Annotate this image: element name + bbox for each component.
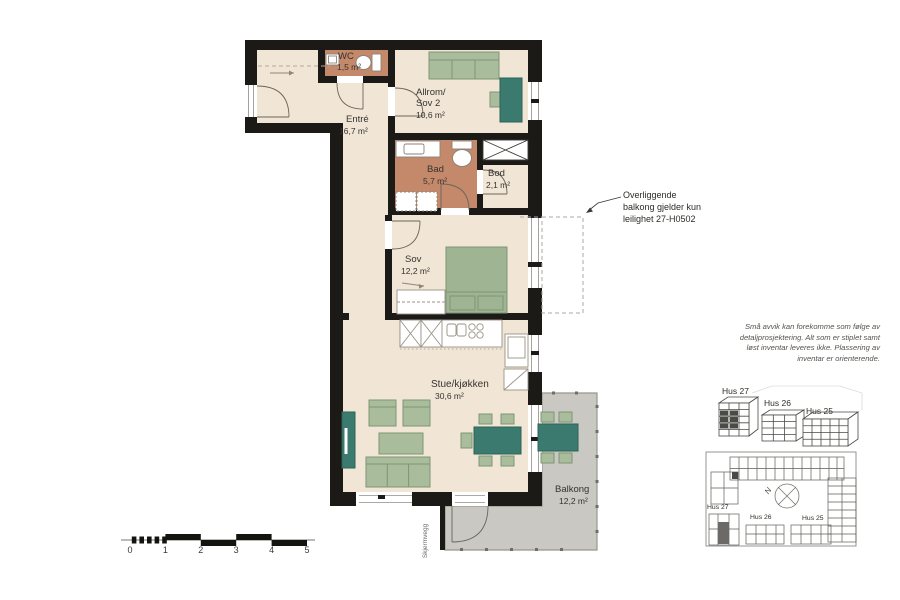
- dining-chair: [501, 414, 514, 424]
- washer-icon: [396, 192, 416, 211]
- sov-door-opening: [385, 221, 392, 249]
- site-plan: [706, 452, 856, 546]
- balcony-chair: [559, 453, 572, 463]
- room-label-entre: Entré: [346, 115, 369, 125]
- elevation-label-hus26: Hus 26: [764, 399, 791, 408]
- disclaimer-text: Små avvik kan forekomme som følge av det…: [660, 322, 880, 364]
- wc-sink-basin-icon: [329, 56, 337, 63]
- kitchen-sink-basin-1: [447, 324, 456, 336]
- room-area-allrom: 10,6 m²: [416, 111, 445, 120]
- wall-entre-allrom-1: [388, 50, 395, 87]
- elevation-label-hus27: Hus 27: [722, 387, 749, 396]
- wall-right-2: [528, 120, 542, 218]
- dining-chair: [479, 456, 492, 466]
- wall-sov-left-1: [385, 215, 392, 221]
- wall-right-5: [528, 472, 542, 506]
- elevation-label-hus25: Hus 25: [806, 407, 833, 416]
- dining-chair: [479, 414, 492, 424]
- room-label-sov: Sov: [405, 255, 421, 265]
- bad-toilet-tank-icon: [452, 141, 472, 149]
- balcony-chair: [559, 412, 572, 422]
- balcony-door-opening: [452, 492, 488, 506]
- balcony-chair: [541, 453, 554, 463]
- annotation-line-2: balkong gjelder kun: [623, 203, 701, 213]
- wall-right-4: [528, 372, 542, 405]
- annotation-line-1: Overliggende: [623, 191, 677, 201]
- floorplan-drawing: [0, 0, 900, 600]
- dryer-icon: [417, 192, 437, 211]
- desk-chair: [490, 92, 500, 107]
- wall-bad-bottom-2: [469, 208, 528, 215]
- coffee-table: [379, 433, 423, 454]
- wall-wc-bottom-1: [318, 76, 337, 83]
- bod-door-opening: [477, 170, 483, 194]
- wall-step: [245, 123, 343, 133]
- screen-wall: [440, 506, 445, 550]
- wall-left-upper: [245, 40, 257, 85]
- balcony-table: [538, 424, 578, 451]
- armchair-2: [403, 400, 430, 426]
- site-label-hus27: Hus 27: [707, 504, 729, 511]
- screen-wall-label: Skjermvegg: [422, 524, 429, 558]
- scale-tick-3: 3: [229, 546, 243, 556]
- entrance-door-opening: [245, 85, 257, 117]
- wall-bottom-2: [412, 492, 452, 506]
- desk: [500, 78, 522, 122]
- room-area-balkong: 12,2 m²: [559, 497, 588, 506]
- room-area-stue: 30,6 m²: [435, 392, 464, 401]
- bad-door-opening: [441, 208, 469, 215]
- cooktop-burner: [469, 324, 475, 330]
- disclaimer-line-4: inventar er orienterende.: [660, 354, 880, 365]
- shaft: [483, 140, 528, 160]
- wall-allrom-bottom: [388, 133, 528, 140]
- bad-sink-basin-icon: [404, 144, 424, 154]
- floorplan-page: WC 1,5 m² Allrom/ Sov 2 10,6 m² Entré 16…: [0, 0, 900, 600]
- site-highlighted-unit: [718, 522, 729, 544]
- dining-chair: [501, 456, 514, 466]
- wall-right-1: [528, 40, 542, 82]
- site-label-hus26: Hus 26: [750, 514, 772, 521]
- disclaimer-line-1: Små avvik kan forekomme som følge av: [660, 322, 880, 333]
- window-sov-1: [528, 218, 542, 262]
- allrom-sofa: [429, 52, 499, 79]
- room-label-bod: Bod: [488, 169, 505, 179]
- cooktop-burner: [477, 332, 483, 338]
- room-area-bad: 5,7 m²: [423, 177, 447, 186]
- site-label-hus25: Hus 25: [802, 515, 824, 522]
- wall-bad-left: [388, 140, 395, 215]
- wc-door-opening: [337, 76, 363, 83]
- room-label-wc: WC: [338, 52, 354, 62]
- wall-sov-bottom-stub: [343, 313, 349, 320]
- wall-top: [245, 40, 540, 50]
- elevation-hus25: [803, 412, 858, 446]
- bed: [446, 247, 507, 313]
- room-label-bad: Bad: [427, 165, 444, 175]
- tv-bench-detail: [345, 428, 348, 454]
- scale-tick-1: 1: [158, 546, 172, 556]
- elevation-hus27: [719, 397, 758, 436]
- room-area-bod: 2,1 m²: [486, 181, 510, 190]
- disclaimer-line-2: detaljprosjektering. Alt som er stiplet …: [660, 333, 880, 344]
- cooktop-burner: [469, 332, 475, 338]
- bad-toilet-icon: [453, 150, 472, 167]
- wall-right-3: [528, 288, 542, 335]
- window-sov-2: [528, 267, 542, 288]
- scale-tick-2: 2: [194, 546, 208, 556]
- annotation-line-3: leilighet 27-H0502: [623, 215, 696, 225]
- kitchen-appliance-inner: [508, 337, 525, 358]
- scale-bar: [121, 534, 315, 546]
- dining-table: [474, 427, 521, 454]
- annotation-leader-line: [588, 197, 621, 211]
- room-label-stue: Stue/kjøkken: [431, 379, 489, 390]
- scale-tick-5: 5: [300, 546, 314, 556]
- wall-bottom-1: [330, 492, 356, 506]
- room-area-entre: 16,7 m²: [339, 127, 368, 136]
- elevation-hus26: [762, 410, 804, 441]
- overhead-balcony-dashed: [542, 217, 583, 313]
- wall-wc-left: [318, 50, 325, 78]
- balcony-chair: [541, 412, 554, 422]
- allrom-door-opening: [388, 87, 395, 116]
- wall-wc-bottom-2: [363, 76, 390, 83]
- wc-toilet-tank-icon: [372, 54, 381, 71]
- dining-chair-end: [461, 433, 472, 448]
- kitchen-sink-basin-2: [457, 324, 466, 336]
- armchair-1: [369, 400, 396, 426]
- wall-shaft-bottom: [477, 160, 528, 165]
- room-area-sov: 12,2 m²: [401, 267, 430, 276]
- cooktop-burner: [477, 324, 483, 330]
- scale-tick-4: 4: [265, 546, 279, 556]
- window-mullion-sov: [528, 262, 542, 267]
- site-detail-mark: [732, 472, 738, 479]
- sofa: [366, 457, 430, 487]
- tv-bench: [342, 412, 355, 468]
- room-label-allrom-1: Allrom/: [416, 88, 446, 98]
- room-label-balkong: Balkong: [555, 485, 589, 495]
- room-area-wc: 1,5 m²: [337, 63, 361, 72]
- wall-sov-left-2: [385, 249, 392, 320]
- scale-tick-0: 0: [123, 546, 137, 556]
- wall-left-column: [330, 123, 343, 506]
- room-label-allrom-2: Sov 2: [416, 99, 440, 109]
- disclaimer-line-3: løst inventar leveres ikke. Plassering a…: [660, 343, 880, 354]
